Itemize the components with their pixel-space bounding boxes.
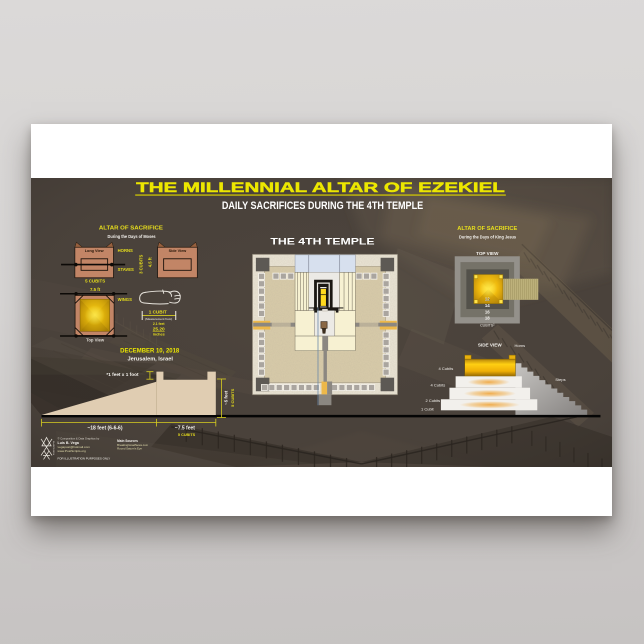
svg-text:5 CUBITS: 5 CUBITS <box>178 433 196 437</box>
svg-text:Horns: Horns <box>515 343 526 348</box>
svg-text:1 Cubit: 1 Cubit <box>421 406 435 411</box>
svg-text:2 Cubits: 2 Cubits <box>426 398 441 403</box>
svg-text:TOP VIEW: TOP VIEW <box>476 251 499 256</box>
svg-text:During the Days of Moses: During the Days of Moses <box>108 234 156 239</box>
svg-text:3 CUBITS: 3 CUBITS <box>139 255 144 274</box>
svg-text:Top View: Top View <box>86 338 105 343</box>
svg-text:~18 feet (6-6-6): ~18 feet (6-6-6) <box>87 425 122 431</box>
svg-text:FOR ILLUSTRATION PURPOSES ONLY: FOR ILLUSTRATION PURPOSES ONLY <box>58 456 111 460</box>
svg-text:www.PostScripts.org: www.PostScripts.org <box>58 449 87 453</box>
svg-text:Jerusalem, Israel: Jerusalem, Israel <box>127 357 173 363</box>
svg-text:DAILY SACRIFICES DURING THE 4T: DAILY SACRIFICES DURING THE 4TH TEMPLE <box>222 200 424 212</box>
svg-text:5 CUBITS: 5 CUBITS <box>85 278 105 283</box>
svg-text:THE MILLENNIAL ALTAR OF EZEKIE: THE MILLENNIAL ALTAR OF EZEKIEL <box>136 179 505 195</box>
svg-text:~7.5 feet: ~7.5 feet <box>175 426 195 432</box>
svg-text:THE 4TH TEMPLE: THE 4TH TEMPLE <box>270 235 374 246</box>
svg-text:4.5 ft: 4.5 ft <box>148 257 153 267</box>
svg-text:ALTAR OF SACRIFICE: ALTAR OF SACRIFICE <box>99 226 163 232</box>
svg-text:5 CUBITS: 5 CUBITS <box>230 388 235 407</box>
svg-text:(Measurement from): (Measurement from) <box>145 317 172 321</box>
svg-text:STAVES: STAVES <box>118 267 134 272</box>
svg-text:Long View: Long View <box>85 249 104 253</box>
svg-text:HORNS: HORNS <box>118 248 133 253</box>
svg-text:ALTAR OF SACRIFICE: ALTAR OF SACRIFICE <box>457 226 517 232</box>
svg-text:7.5 ft: 7.5 ft <box>90 287 101 292</box>
svg-text:Round Saturn’s Eye: Round Saturn’s Eye <box>117 447 142 451</box>
svg-text:DECEMBER 10, 2018: DECEMBER 10, 2018 <box>120 348 179 355</box>
svg-text:WINGS: WINGS <box>118 297 132 302</box>
svg-text:2.1 feet: 2.1 feet <box>153 322 166 326</box>
svg-text:1 CUBIT: 1 CUBIT <box>149 309 167 314</box>
svg-text:SIDE VIEW: SIDE VIEW <box>478 343 502 348</box>
svg-text:Side View: Side View <box>169 249 187 253</box>
svg-text:POSTSCRIPTS: POSTSCRIPTS <box>54 440 56 455</box>
svg-text:*1 feet x 1 foot: *1 feet x 1 foot <box>106 372 139 377</box>
svg-text:12: 12 <box>485 297 490 302</box>
svg-text:© Composition & Data Graphics: © Composition & Data Graphics by <box>58 436 100 440</box>
svg-text:18: 18 <box>485 316 490 321</box>
svg-text:16: 16 <box>485 309 490 314</box>
svg-text:25.20: 25.20 <box>153 326 165 332</box>
svg-text:14: 14 <box>485 303 490 308</box>
svg-text:4 Cubits: 4 Cubits <box>431 383 446 388</box>
svg-text:inches: inches <box>153 333 165 337</box>
svg-text:~5 feet: ~5 feet <box>223 390 228 405</box>
svg-text:During the Days of King Jesus: During the Days of King Jesus <box>459 235 516 240</box>
svg-text:CUBITS²: CUBITS² <box>480 323 495 327</box>
svg-text:Steps: Steps <box>555 377 565 382</box>
svg-text:4 Cubits: 4 Cubits <box>439 366 454 371</box>
